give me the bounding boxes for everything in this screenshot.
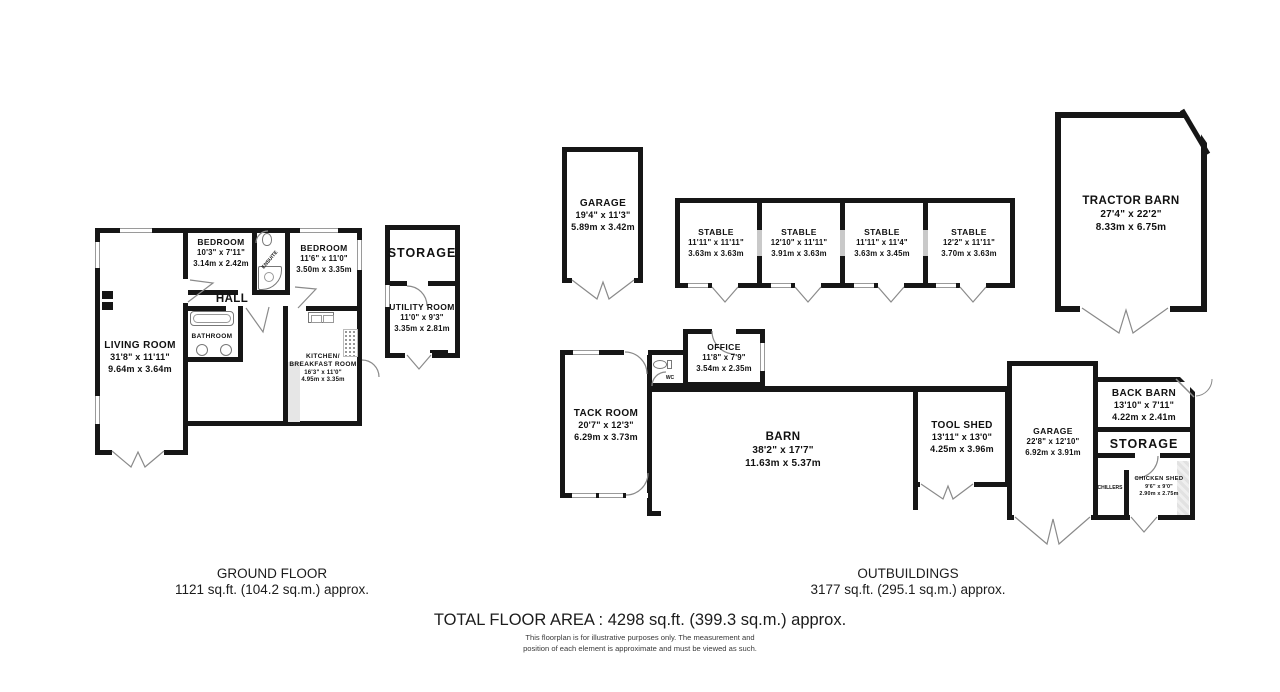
room-name: UTILITY ROOM bbox=[389, 302, 455, 313]
outbuildings-summary: OUTBUILDINGS 3177 sq.ft. (295.1 sq.m.) a… bbox=[758, 566, 1058, 597]
door-opening bbox=[920, 482, 974, 487]
label-hall: HALL bbox=[202, 292, 262, 306]
label-tool-shed: TOOL SHED 13'11" x 13'0" 4.25m x 3.96m bbox=[918, 420, 1006, 454]
room-name: BATHROOM bbox=[192, 333, 233, 341]
label-bathroom: BATHROOM bbox=[186, 332, 238, 342]
label-kitchen: KITCHEN/ BREAKFAST ROOM 16'3" x 11'0" 4.… bbox=[286, 352, 360, 386]
room-dims-imperial: 11'0" x 9'3" bbox=[400, 313, 443, 323]
room-name: LIVING ROOM bbox=[104, 339, 176, 352]
room-dims-imperial: 27'4" x 22'2" bbox=[1100, 208, 1161, 221]
wall-stub bbox=[647, 511, 661, 516]
door bbox=[960, 287, 986, 302]
room-name: BEDROOM bbox=[197, 237, 244, 248]
sink-bowl bbox=[323, 315, 334, 323]
wc-cistern-icon bbox=[667, 360, 672, 369]
room-dims-imperial: 31'8" x 11'11" bbox=[110, 352, 170, 364]
room-dims-metric: 4.22m x 2.41m bbox=[1112, 412, 1176, 424]
room-dims-metric: 4.95m x 3.35m bbox=[301, 377, 344, 385]
room-name: WC bbox=[666, 375, 674, 382]
room-name: STABLE bbox=[781, 227, 817, 238]
window bbox=[95, 242, 100, 268]
wall bbox=[238, 306, 243, 362]
fireplace-icon bbox=[102, 291, 113, 299]
room-name: TACK ROOM bbox=[574, 407, 639, 420]
room-dims-metric: 2.90m x 2.75m bbox=[1139, 491, 1178, 498]
door bbox=[712, 287, 738, 302]
room-dims-metric: 3.91m x 3.63m bbox=[771, 249, 826, 259]
door-opening bbox=[624, 350, 648, 355]
room-name: CHILLERS bbox=[1098, 485, 1123, 492]
floorplan-canvas: LIVING ROOM 31'8" x 11'11" 9.64m x 3.64m… bbox=[0, 0, 1280, 692]
door-opening bbox=[1130, 515, 1158, 520]
room-name: TOOL SHED bbox=[931, 419, 993, 432]
room-name: TRACTOR BARN bbox=[1082, 194, 1179, 209]
label-utility: UTILITY ROOM 11'0" x 9'3" 3.35m x 2.81m bbox=[386, 303, 458, 333]
room-name: GARAGE bbox=[580, 197, 626, 210]
ground-floor-summary: GROUND FLOOR 1121 sq.ft. (104.2 sq.m.) a… bbox=[122, 566, 422, 597]
window bbox=[120, 228, 152, 233]
room-wc bbox=[647, 350, 688, 388]
outbuildings-area: 3177 sq.ft. (295.1 sq.m.) approx. bbox=[758, 582, 1058, 598]
room-dims-metric: 3.63m x 3.45m bbox=[854, 249, 909, 259]
door bbox=[878, 287, 904, 302]
door-opening bbox=[405, 353, 432, 358]
room-name: KITCHEN/ bbox=[306, 353, 340, 361]
door-opening bbox=[572, 278, 634, 283]
window bbox=[95, 396, 100, 424]
room-name: STABLE bbox=[864, 227, 900, 238]
window bbox=[760, 343, 765, 371]
label-wc: WC bbox=[660, 374, 680, 382]
room-dims-metric: 6.29m x 3.73m bbox=[574, 432, 638, 444]
room-name: BARN bbox=[766, 430, 801, 445]
wall bbox=[188, 357, 243, 362]
window bbox=[599, 493, 623, 498]
room-name: HALL bbox=[216, 292, 248, 307]
sink-icon bbox=[220, 344, 232, 356]
label-chillers: CHILLERS bbox=[1095, 484, 1125, 492]
label-living-room: LIVING ROOM 31'8" x 11'11" 9.64m x 3.64m bbox=[99, 340, 181, 374]
door-opening bbox=[878, 283, 904, 288]
door-opening bbox=[1014, 515, 1091, 520]
room-dims-imperial: 38'2" x 17'7" bbox=[752, 444, 813, 457]
wall bbox=[306, 306, 362, 311]
ground-floor-area: 1121 sq.ft. (104.2 sq.m.) approx. bbox=[122, 582, 422, 598]
room-name: STORAGE bbox=[1110, 436, 1179, 452]
double-door bbox=[1015, 517, 1090, 544]
room-dims-metric: 3.54m x 2.35m bbox=[696, 364, 751, 374]
label-garage-top: GARAGE 19'4" x 11'3" 5.89m x 3.42m bbox=[566, 199, 640, 231]
window bbox=[936, 283, 956, 288]
room-name: CHICKEN SHED bbox=[1135, 476, 1184, 484]
ground-floor-title: GROUND FLOOR bbox=[122, 566, 422, 582]
window bbox=[572, 493, 596, 498]
room-dims-imperial: 12'2" x 11'11" bbox=[943, 238, 995, 248]
room-dims-imperial: 19'4" x 11'3" bbox=[576, 210, 631, 222]
label-stable-3: STABLE 11'11" x 11'4" 3.63m x 3.45m bbox=[842, 228, 922, 258]
label-stable-2: STABLE 12'10" x 11'11" 3.91m x 3.63m bbox=[759, 228, 839, 258]
window bbox=[771, 283, 791, 288]
label-barn: BARN 38'2" x 17'7" 11.63m x 5.37m bbox=[723, 432, 843, 468]
window bbox=[854, 283, 874, 288]
room-dims-imperial: 16'3" x 11'0" bbox=[304, 370, 342, 378]
label-chicken-shed: CHICKEN SHED 9'6" x 9'0" 2.90m x 2.75m bbox=[1127, 474, 1191, 500]
room-name: GARAGE bbox=[1033, 426, 1073, 437]
label-bedroom-large: BEDROOM 11'6" x 11'0" 3.50m x 3.35m bbox=[288, 244, 360, 274]
wall bbox=[430, 350, 448, 358]
room-dims-metric: 5.89m x 3.42m bbox=[571, 222, 635, 234]
wall-stub bbox=[913, 482, 918, 510]
disclaimer-line-2: position of each element is approximate … bbox=[440, 643, 840, 654]
room-name: OFFICE bbox=[707, 342, 741, 353]
room-dims-imperial: 20'7" x 12'3" bbox=[578, 420, 633, 432]
door-opening bbox=[960, 283, 986, 288]
door-opening bbox=[712, 283, 738, 288]
room-dims-metric: 3.35m x 2.81m bbox=[394, 324, 449, 334]
label-office: OFFICE 11'8" x 7'9" 3.54m x 2.35m bbox=[688, 343, 760, 373]
room-dims-imperial: 11'11" x 11'4" bbox=[856, 238, 908, 248]
door-opening bbox=[712, 329, 736, 334]
room-dims-imperial: 10'3" x 7'11" bbox=[197, 248, 245, 258]
window bbox=[573, 350, 599, 355]
label-bedroom-small: BEDROOM 10'3" x 7'11" 3.14m x 2.42m bbox=[186, 238, 256, 268]
room-dims-metric: 8.33m x 6.75m bbox=[1096, 221, 1166, 234]
label-stable-1: STABLE 11'11" x 11'11" 3.63m x 3.63m bbox=[676, 228, 756, 258]
room-dims-imperial: 9'6" x 9'0" bbox=[1145, 484, 1173, 491]
door-swing bbox=[362, 360, 379, 377]
wall bbox=[390, 281, 407, 286]
room-dims-imperial: 11'8" x 7'9" bbox=[702, 353, 745, 363]
outbuildings-title: OUTBUILDINGS bbox=[758, 566, 1058, 582]
window bbox=[300, 228, 338, 233]
room-name: STORAGE bbox=[388, 245, 457, 261]
door-opening bbox=[183, 279, 188, 303]
door-opening bbox=[626, 493, 648, 498]
bathtub-icon bbox=[190, 311, 234, 326]
door-opening bbox=[1080, 306, 1170, 312]
label-stable-4: STABLE 12'2" x 11'11" 3.70m x 3.63m bbox=[929, 228, 1009, 258]
door bbox=[795, 287, 821, 302]
barn-top-wall bbox=[650, 386, 1010, 392]
shower-drain bbox=[264, 272, 274, 282]
label-tractor-barn: TRACTOR BARN 27'4" x 22'2" 8.33m x 6.75m bbox=[1071, 196, 1191, 232]
disclaimer-line-1: This floorplan is for illustrative purpo… bbox=[440, 632, 840, 643]
room-dims-metric: 3.63m x 3.63m bbox=[688, 249, 743, 259]
fireplace-icon bbox=[102, 302, 113, 310]
room-dims-metric: 6.92m x 3.91m bbox=[1025, 448, 1080, 458]
door-opening bbox=[1135, 453, 1160, 458]
sink-bowl bbox=[311, 315, 322, 323]
room-name: BACK BARN bbox=[1112, 387, 1176, 400]
door-swing bbox=[1196, 379, 1212, 396]
room-dims-metric: 3.50m x 3.35m bbox=[296, 265, 351, 275]
room-dims-imperial: 13'10" x 7'11" bbox=[1114, 400, 1174, 412]
disclaimer-text: This floorplan is for illustrative purpo… bbox=[440, 632, 840, 654]
room-dims-imperial: 11'11" x 11'11" bbox=[688, 238, 744, 248]
door-opening bbox=[795, 283, 821, 288]
label-storage-right: STORAGE bbox=[1098, 436, 1190, 452]
label-garage-bottom: GARAGE 22'8" x 12'10" 6.92m x 3.91m bbox=[1012, 426, 1094, 458]
partial-wall bbox=[923, 230, 928, 256]
bathtub-inner bbox=[193, 314, 231, 323]
kitchen-sink-icon bbox=[308, 312, 334, 323]
room-dims-metric: 4.25m x 3.96m bbox=[930, 444, 994, 456]
room-dims-imperial: 13'11" x 13'0" bbox=[932, 432, 992, 444]
room-name: BEDROOM bbox=[300, 243, 347, 254]
room-name: STABLE bbox=[698, 227, 734, 238]
sink-icon bbox=[196, 344, 208, 356]
room-dims-metric: 3.70m x 3.63m bbox=[941, 249, 996, 259]
wall bbox=[428, 281, 455, 286]
label-back-barn: BACK BARN 13'10" x 7'11" 4.22m x 2.41m bbox=[1099, 388, 1189, 422]
room-dims-metric: 3.14m x 2.42m bbox=[193, 259, 248, 269]
room-name2: BREAKFAST ROOM bbox=[289, 361, 356, 369]
label-storage-annex: STORAGE bbox=[388, 246, 456, 260]
label-tack-room: TACK ROOM 20'7" x 12'3" 6.29m x 3.73m bbox=[566, 408, 646, 442]
window bbox=[688, 283, 708, 288]
room-name: STABLE bbox=[951, 227, 987, 238]
total-floor-area: TOTAL FLOOR AREA : 4298 sq.ft. (399.3 sq… bbox=[390, 611, 890, 630]
wc-toilet-icon bbox=[653, 360, 667, 369]
room-dims-metric: 9.64m x 3.64m bbox=[108, 364, 172, 376]
toilet-icon bbox=[262, 233, 272, 246]
room-dims-imperial: 11'6" x 11'0" bbox=[300, 254, 348, 264]
room-dims-metric: 11.63m x 5.37m bbox=[745, 457, 821, 470]
room-dims-imperial: 12'10" x 11'11" bbox=[771, 238, 828, 248]
door-opening bbox=[112, 450, 164, 455]
room-dims-imperial: 22'8" x 12'10" bbox=[1027, 437, 1080, 447]
